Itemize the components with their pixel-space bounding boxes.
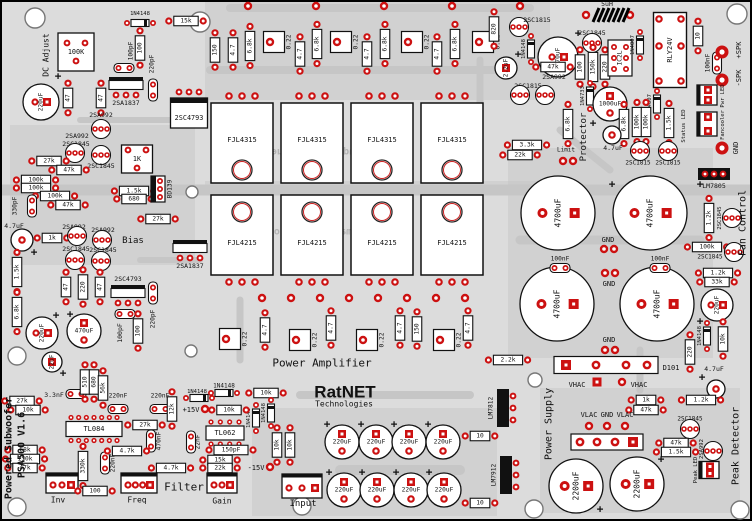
hole <box>727 4 747 24</box>
text-vlac: VLAC <box>581 411 598 419</box>
text-2sc1845: 2SC1845 <box>697 254 723 261</box>
svg-text:VHAC: VHAC <box>631 381 648 389</box>
svg-text:+: + <box>699 371 706 384</box>
conn <box>699 462 719 479</box>
svg-text:2SA1837: 2SA1837 <box>112 99 139 107</box>
svg-text:47k: 47k <box>670 440 681 447</box>
pot-1k: 1K <box>122 145 153 173</box>
svg-text:10k: 10k <box>274 439 281 450</box>
svg-text:Inv: Inv <box>51 496 66 505</box>
svg-text:1.2k: 1.2k <box>706 210 713 225</box>
pad <box>611 346 619 354</box>
svg-text:2SA992: 2SA992 <box>65 132 89 140</box>
svg-text:FJL4215: FJL4215 <box>367 239 397 247</box>
svg-text:820: 820 <box>491 23 498 34</box>
ressq-0.22: 0.22 <box>264 32 293 53</box>
fjl-fjl4215: FJL4215 <box>421 195 483 286</box>
svg-text:220: 220 <box>687 346 694 357</box>
text-filter: Filter <box>164 481 204 494</box>
film-100nf: 100nF <box>550 256 570 273</box>
vtext-power-supply: Power Supply <box>544 388 555 460</box>
svg-text:0.22: 0.22 <box>312 332 319 347</box>
svg-text:BD139: BD139 <box>167 179 174 198</box>
svg-text:510: 510 <box>82 376 89 387</box>
pcb-board: Powered Subwoofer PSA500 V1.6 Made In Ve… <box>0 0 752 521</box>
svg-text:Power Supply: Power Supply <box>544 388 555 460</box>
svg-text:27k: 27k <box>139 422 150 429</box>
pot-100k: 100K <box>58 33 94 71</box>
svg-text:6.8k: 6.8k <box>382 36 389 51</box>
vtext-peak-detector: Peak Detector <box>731 407 742 485</box>
fjl-fjl4215: FJL4215 <box>281 195 343 286</box>
vtext-protector: Protector <box>579 112 589 161</box>
svg-text:VHAC: VHAC <box>569 381 586 389</box>
svg-text:FJL4315: FJL4315 <box>437 136 467 144</box>
svg-text:5uH: 5uH <box>601 0 613 8</box>
svg-text:100K: 100K <box>68 48 85 56</box>
svg-text:1.5k: 1.5k <box>669 449 684 456</box>
text-1n4148: 1N4148 <box>213 383 235 390</box>
svg-text:1N4148: 1N4148 <box>130 11 150 17</box>
hole <box>185 345 197 357</box>
svg-text:2.2k: 2.2k <box>501 357 516 364</box>
text-2sc1845: 2SC1845 <box>87 162 114 170</box>
svg-text:220uF: 220uF <box>368 487 387 494</box>
svg-text:100nF: 100nF <box>551 256 570 263</box>
svg-text:VLAC: VLAC <box>617 411 634 419</box>
vtext-gnd: GND <box>732 142 740 155</box>
text-+15v: +15V <box>183 406 201 414</box>
svg-text:56k: 56k <box>100 382 107 393</box>
film-100nf: 100nF <box>650 256 670 273</box>
svg-text:4700uF: 4700uF <box>553 289 562 318</box>
svg-text:Limit: Limit <box>557 147 575 154</box>
svg-text:10: 10 <box>476 500 484 507</box>
svg-text:22k: 22k <box>214 465 225 472</box>
svg-text:220: 220 <box>80 281 87 292</box>
pad <box>201 405 209 413</box>
svg-text:2SC1845: 2SC1845 <box>87 162 114 170</box>
ressq-0.22: 0.22 <box>402 32 431 53</box>
svg-text:FJL4215: FJL4215 <box>227 239 257 247</box>
svg-text:150pF: 150pF <box>222 447 241 454</box>
text-gnd: GND <box>603 280 616 288</box>
svg-text:100: 100 <box>137 42 144 53</box>
plus: + <box>697 178 704 191</box>
vtext-pwr-led: Pwr LED <box>720 84 726 107</box>
text--15v: -15V <box>248 464 266 472</box>
svg-text:+: + <box>426 466 433 479</box>
vtext-psa500-v1.6: PSA500 V1.6 <box>17 412 28 478</box>
svg-text:47: 47 <box>98 94 105 102</box>
sqpad <box>593 378 602 387</box>
svg-text:4.7: 4.7 <box>397 322 404 333</box>
svg-text:220uF: 220uF <box>400 439 419 446</box>
to92 <box>631 142 650 161</box>
plus: + <box>597 503 604 516</box>
text-4.7uf: 4.7uF <box>603 144 623 152</box>
svg-text:100k: 100k <box>643 114 650 129</box>
vtext-+spk: +SPK <box>735 41 743 59</box>
text-gnd: GND <box>601 411 614 419</box>
text-vhac: VHAC <box>569 381 586 389</box>
text-4.7uf: 4.7uF <box>704 365 724 373</box>
svg-text:4.7k: 4.7k <box>120 448 135 455</box>
svg-text:6.8k: 6.8k <box>14 304 21 319</box>
svg-text:220uF: 220uF <box>435 487 454 494</box>
hole <box>8 498 26 516</box>
svg-text:100k: 100k <box>700 244 715 251</box>
vtext--spk: -SPK <box>735 69 743 87</box>
svg-text:LM7812: LM7812 <box>488 397 495 420</box>
svg-text:6.8k: 6.8k <box>452 36 459 51</box>
pcb-layout-screenshot: Powered Subwoofer PSA500 V1.6 Made In Ve… <box>0 0 752 521</box>
svg-text:+: + <box>697 315 704 328</box>
svg-text:33k: 33k <box>711 279 722 286</box>
svg-text:Fancooler: Fancooler <box>720 109 726 139</box>
pad <box>600 245 608 253</box>
text-bias: Bias <box>122 236 144 246</box>
hole <box>525 500 543 518</box>
svg-text:220uF: 220uF <box>714 295 721 314</box>
svg-text:680: 680 <box>91 376 98 387</box>
svg-text:470nF: 470nF <box>156 431 163 450</box>
svg-text:22uF: 22uF <box>49 354 56 369</box>
svg-text:1N4148: 1N4148 <box>261 403 267 423</box>
svg-text:Input: Input <box>289 499 316 509</box>
pad <box>610 245 618 253</box>
svg-text:+: + <box>393 466 400 479</box>
svg-text:4.7uF: 4.7uF <box>704 365 724 373</box>
svg-text:+: + <box>359 466 366 479</box>
fjl-fjl4315: FJL4315 <box>211 92 273 183</box>
text-2sa992: 2SA992 <box>65 132 89 140</box>
vtext-status-led: Status LED <box>681 109 687 142</box>
vtext-100pf: 100pF <box>116 323 124 343</box>
hole <box>528 373 542 387</box>
bigpad <box>716 46 729 59</box>
text-freq: Freq <box>127 496 146 505</box>
svg-text:Power Amplifier: Power Amplifier <box>272 357 372 370</box>
svg-text:+: + <box>324 418 331 431</box>
svg-text:10k: 10k <box>720 333 727 344</box>
text-vlac: VLAC <box>617 411 634 419</box>
svg-text:+: + <box>326 466 333 479</box>
svg-text:+: + <box>53 309 60 322</box>
svg-text:100k: 100k <box>29 185 44 192</box>
text-2sa992: 2SA992 <box>542 73 566 81</box>
text-gain: Gain <box>212 497 231 506</box>
conn <box>697 85 717 105</box>
svg-text:FJL4215: FJL4215 <box>437 239 467 247</box>
svg-text:15k: 15k <box>214 457 225 464</box>
svg-text:1.5k: 1.5k <box>127 188 142 195</box>
svg-text:3.3nF: 3.3nF <box>44 391 64 399</box>
svg-text:10: 10 <box>476 433 484 440</box>
svg-text:+: + <box>425 418 432 431</box>
svg-text:6.8k: 6.8k <box>247 38 254 53</box>
svg-text:+: + <box>391 418 398 431</box>
svg-text:2200uF: 2200uF <box>633 469 642 498</box>
text-limit: Limit <box>557 147 575 154</box>
text-2sc1815: 2SC1815 <box>625 160 651 167</box>
svg-text:+: + <box>31 246 38 259</box>
to92-2sa992: 2SA992 <box>89 111 113 139</box>
svg-text:22k: 22k <box>514 152 525 159</box>
svg-text:TL062: TL062 <box>214 429 235 437</box>
svg-text:10: 10 <box>695 32 702 40</box>
svg-text:+: + <box>658 453 665 466</box>
svg-text:2SC1845: 2SC1845 <box>697 254 723 261</box>
svg-text:10k: 10k <box>287 439 294 450</box>
conn <box>207 473 237 493</box>
svg-text:15k: 15k <box>180 18 191 25</box>
cap-4700uf: 4700uF <box>620 267 694 341</box>
pad <box>618 378 626 386</box>
film <box>115 310 135 319</box>
svg-text:330k: 330k <box>80 458 87 473</box>
text-gnd: GND <box>602 236 615 244</box>
svg-text:100nF: 100nF <box>651 256 670 263</box>
svg-text:2SC1815: 2SC1815 <box>625 160 651 167</box>
svg-text:GND: GND <box>603 336 616 344</box>
svg-text:0.22: 0.22 <box>456 332 463 347</box>
cap-4700uf: 4700uF <box>520 267 594 341</box>
svg-text:FJL4315: FJL4315 <box>367 136 397 144</box>
svg-text:+15V: +15V <box>183 406 201 414</box>
fjl-fjl4315: FJL4315 <box>351 92 413 183</box>
hole <box>731 501 749 519</box>
svg-text:+: + <box>60 367 67 380</box>
svg-text:GND: GND <box>732 142 740 155</box>
svg-text:+: + <box>590 117 597 130</box>
dbox <box>571 434 643 450</box>
cap <box>603 126 621 144</box>
svg-text:100pF: 100pF <box>128 41 135 60</box>
svg-text:2.2uF: 2.2uF <box>503 58 510 77</box>
svg-text:6.8k: 6.8k <box>314 36 321 51</box>
svg-text:GND: GND <box>602 236 615 244</box>
svg-text:Gain: Gain <box>212 497 231 506</box>
pad <box>601 346 609 354</box>
svg-text:FJL4315: FJL4315 <box>297 136 327 144</box>
conn <box>121 473 157 493</box>
svg-text:680: 680 <box>128 196 139 203</box>
svg-text:0.22: 0.22 <box>286 34 293 49</box>
pad <box>621 422 629 430</box>
conn <box>697 112 717 136</box>
svg-text:27k: 27k <box>152 216 163 223</box>
to92 <box>536 86 555 105</box>
text-2sc1815: 2SC1815 <box>523 16 550 24</box>
svg-text:D101: D101 <box>663 364 680 372</box>
pad <box>559 157 567 165</box>
svg-text:4.7: 4.7 <box>434 48 441 59</box>
svg-text:Freq: Freq <box>127 496 146 505</box>
dbox <box>554 357 658 374</box>
ressq-0.22: 0.22 <box>434 330 463 351</box>
conn <box>282 474 322 498</box>
cap-220uf: 220uF <box>701 289 733 321</box>
plus: + <box>699 371 706 384</box>
svg-text:1.2k: 1.2k <box>694 397 709 404</box>
pad <box>569 157 577 165</box>
svg-text:Peak LED: Peak LED <box>693 457 699 484</box>
text-d101: D101 <box>663 364 680 372</box>
svg-text:2SA992: 2SA992 <box>89 111 113 119</box>
svg-text:GND: GND <box>603 280 616 288</box>
ressq-0.22: 0.22 <box>331 32 360 53</box>
svg-text:220uF: 220uF <box>402 487 421 494</box>
pad <box>603 422 611 430</box>
vtext-peak-led: Peak LED <box>693 457 699 484</box>
svg-text:47: 47 <box>97 283 104 291</box>
svg-text:PSA500 V1.6: PSA500 V1.6 <box>17 412 28 478</box>
svg-text:1.2k: 1.2k <box>711 270 726 277</box>
svg-text:0.22: 0.22 <box>379 332 386 347</box>
svg-text:4.7: 4.7 <box>230 44 237 55</box>
vtext-fan-control: Fan Control <box>738 190 749 256</box>
svg-text:150: 150 <box>414 323 421 334</box>
svg-text:47: 47 <box>63 283 70 291</box>
bigpad <box>716 142 729 155</box>
svg-text:220nF: 220nF <box>109 393 128 400</box>
svg-text:2SC1815: 2SC1815 <box>523 16 550 24</box>
svg-text:100: 100 <box>577 61 584 72</box>
cap-2200uf: 2200uF <box>549 459 603 513</box>
to92 <box>659 142 678 161</box>
fjl-fjl4215: FJL4215 <box>351 195 413 286</box>
svg-text:2SC1815: 2SC1815 <box>655 160 681 167</box>
relay-rly24v: RLY24V <box>654 13 687 88</box>
svg-text:27k: 27k <box>16 398 27 405</box>
svg-text:TL084: TL084 <box>83 425 104 433</box>
svg-text:220pF: 220pF <box>149 54 156 73</box>
svg-text:6.8k: 6.8k <box>621 116 628 131</box>
svg-text:4.7: 4.7 <box>364 48 371 59</box>
svg-text:1k: 1k <box>642 397 650 404</box>
svg-text:1N4148: 1N4148 <box>697 326 703 346</box>
text-power-amplifier: Power Amplifier <box>272 357 372 370</box>
svg-text:47k: 47k <box>547 64 558 71</box>
svg-text:220uF: 220uF <box>434 439 453 446</box>
cap-2200uf: 2200uF <box>610 457 664 511</box>
svg-text:220uF: 220uF <box>367 439 386 446</box>
svg-text:100pF: 100pF <box>116 323 124 343</box>
svg-text:470uF: 470uF <box>75 328 94 335</box>
svg-text:1N4148: 1N4148 <box>521 39 527 59</box>
svg-text:4700uF: 4700uF <box>554 198 563 227</box>
svg-text:1N4007: 1N4007 <box>630 35 636 55</box>
plus: + <box>658 453 665 466</box>
ressq-0.22: 0.22 <box>290 330 319 351</box>
svg-text:DC Adjust: DC Adjust <box>42 33 51 77</box>
conn <box>46 473 78 493</box>
bd-bd139: BD139 <box>151 176 174 202</box>
svg-text:220uF: 220uF <box>39 323 46 342</box>
svg-text:1.5k: 1.5k <box>14 264 21 279</box>
svg-text:47k: 47k <box>62 202 73 209</box>
vtext-powered-subwoofer: Powered Subwoofer <box>4 397 15 499</box>
pad <box>611 269 619 277</box>
svg-text:+SPK: +SPK <box>735 41 743 59</box>
fjl-fjl4315: FJL4315 <box>421 92 483 183</box>
to220-2sc4793: 2SC4793 <box>111 275 145 306</box>
svg-text:+: + <box>697 178 704 191</box>
text-vhac: VHAC <box>631 381 648 389</box>
svg-text:IC2L: IC2L <box>617 50 624 65</box>
svg-text:1k: 1k <box>48 235 56 242</box>
fjl-fjl4315: FJL4315 <box>281 92 343 183</box>
svg-text:Filter: Filter <box>164 481 204 494</box>
svg-text:2SA1837: 2SA1837 <box>176 262 203 270</box>
svg-text:47: 47 <box>65 94 72 102</box>
hole <box>25 8 45 28</box>
svg-text:12k: 12k <box>169 403 176 414</box>
svg-text:2SC4793: 2SC4793 <box>175 114 204 122</box>
text-3.3nf: 3.3nF <box>44 391 64 399</box>
svg-text:150k: 150k <box>590 59 597 74</box>
svg-text:27k: 27k <box>43 158 54 165</box>
svg-text:+: + <box>597 503 604 516</box>
svg-text:1N4733: 1N4733 <box>580 86 586 106</box>
svg-text:-SPK: -SPK <box>735 69 743 87</box>
svg-text:4.7k: 4.7k <box>164 465 179 472</box>
svg-text:+: + <box>358 418 365 431</box>
svg-text:0.22: 0.22 <box>242 331 249 346</box>
svg-text:+: + <box>67 308 74 321</box>
svg-text:RLY24V: RLY24V <box>666 37 674 63</box>
svg-text:2SC4793: 2SC4793 <box>114 275 141 283</box>
text-technologies: Technologies <box>315 400 373 409</box>
text-2sc1815: 2SC1815 <box>655 160 681 167</box>
to92 <box>68 227 87 246</box>
svg-text:0.22: 0.22 <box>424 34 431 49</box>
svg-text:150: 150 <box>212 44 219 55</box>
svg-text:1.5k: 1.5k <box>666 115 673 130</box>
svg-text:Fan Control: Fan Control <box>738 190 749 256</box>
svg-text:4.7: 4.7 <box>297 48 304 59</box>
svg-text:2SA992: 2SA992 <box>542 73 566 81</box>
svg-text:Powered Subwoofer: Powered Subwoofer <box>4 397 15 499</box>
svg-text:Bias: Bias <box>122 236 144 246</box>
svg-text:6.8k: 6.8k <box>565 116 572 131</box>
svg-text:100k: 100k <box>634 114 641 129</box>
plus: + <box>609 178 616 191</box>
svg-text:4.7: 4.7 <box>465 322 472 333</box>
ressq-0.22: 0.22 <box>357 330 386 351</box>
to92 <box>92 252 111 271</box>
svg-text:VLAC: VLAC <box>581 411 598 419</box>
to92 <box>704 442 723 461</box>
svg-text:220uF: 220uF <box>38 92 45 111</box>
svg-text:-15V: -15V <box>248 464 266 472</box>
svg-text:GND: GND <box>601 411 614 419</box>
svg-text:+: + <box>55 70 62 83</box>
svg-text:LM7912: LM7912 <box>491 464 498 487</box>
svg-text:4700uF: 4700uF <box>646 198 655 227</box>
vtext-dc-adjust: DC Adjust <box>42 33 51 77</box>
svg-text:100: 100 <box>135 325 142 336</box>
svg-text:220uF: 220uF <box>333 439 352 446</box>
pad <box>585 422 593 430</box>
to92 <box>511 86 530 105</box>
to92 <box>681 420 700 439</box>
svg-text:100nF: 100nF <box>705 53 712 72</box>
cap-4700uf: 4700uF <box>613 176 687 250</box>
svg-text:Technologies: Technologies <box>315 400 373 409</box>
text-gnd: GND <box>603 336 616 344</box>
